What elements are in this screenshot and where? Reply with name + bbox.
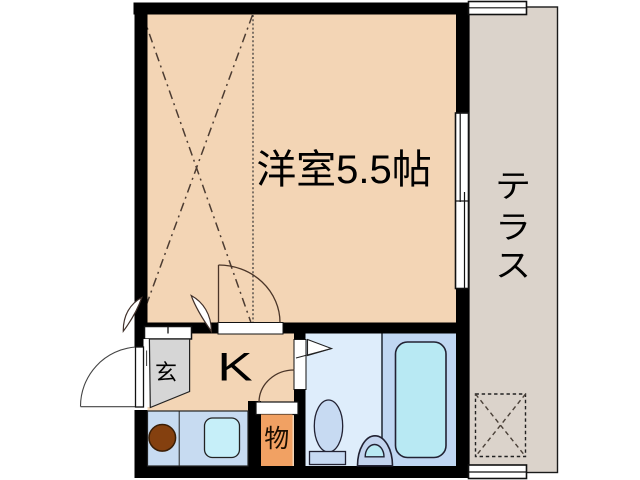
svg-text:K: K [217,345,252,389]
svg-text:洋室5.5帖: 洋室5.5帖 [256,148,432,192]
svg-text:ス: ス [495,248,531,284]
svg-text:玄: 玄 [155,360,177,385]
svg-text:物: 物 [264,425,289,453]
svg-text:ラ: ラ [495,210,531,246]
svg-text:テ: テ [495,169,531,205]
